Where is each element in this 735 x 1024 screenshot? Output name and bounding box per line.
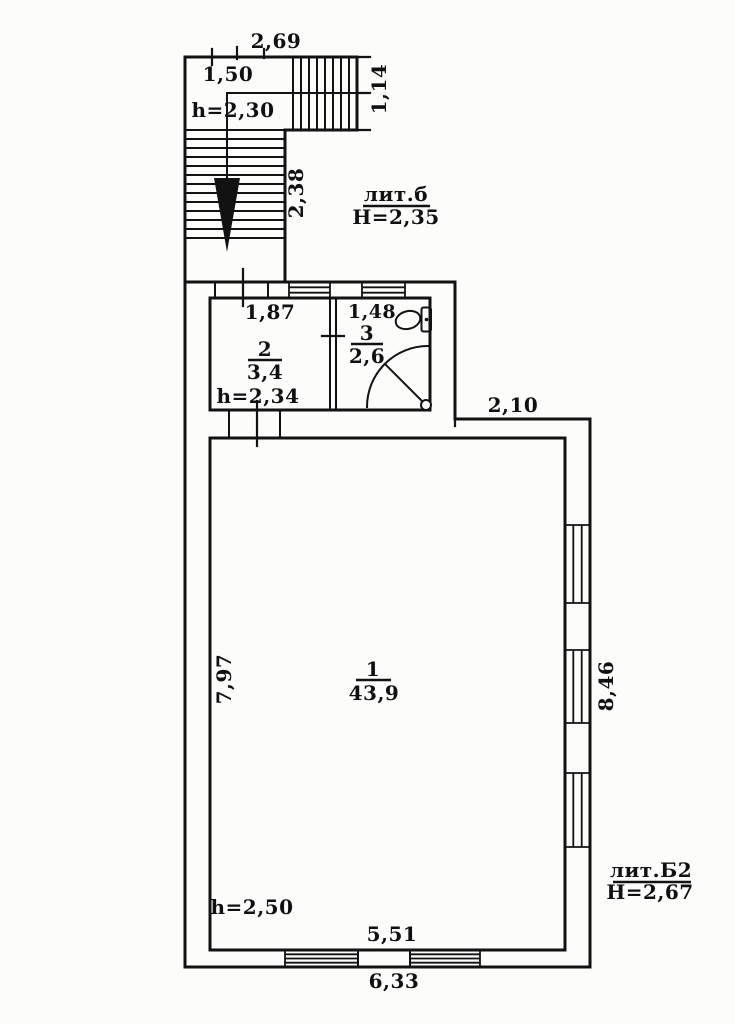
annex-height: Н=2,35: [352, 205, 439, 229]
room3-area: 2,6: [349, 344, 385, 368]
room3-number: 3: [360, 321, 374, 345]
room1-number: 1: [366, 657, 380, 681]
dim-stair-flight-length: 2,38: [284, 168, 308, 219]
stair-annex-outline: [185, 57, 357, 282]
window-bottom-2: [410, 950, 480, 967]
dim-stair-total-width: 2,69: [251, 29, 302, 53]
dim-room3-width: 1,48: [348, 301, 396, 323]
room1-labels: 2,10 1 43,9 7,97 8,46 h=2,50 5,51 6,33: [210, 393, 618, 993]
room2-area: 3,4: [247, 360, 283, 384]
stair-height-label: h=2,30: [191, 98, 274, 122]
building-b2-label: лит.Б2 Н=2,67: [606, 858, 693, 904]
building-height: Н=2,67: [606, 880, 693, 904]
annex-b-label: лит.б Н=2,35: [352, 182, 439, 229]
dim-room1-left-depth: 7,97: [212, 654, 236, 705]
room1-height-label: h=2,50: [210, 895, 293, 919]
floor-plan-drawing: 2,69 1,50 h=2,30 1,14 2,38 лит.б Н=2,35 …: [0, 0, 735, 1024]
dim-room2-width: 1,87: [245, 300, 296, 324]
window-top-room2: [289, 282, 330, 298]
room2-number: 2: [258, 337, 272, 361]
dim-room1-right-depth: 8,46: [594, 661, 618, 712]
room2-height-label: h=2,34: [216, 384, 299, 408]
room3-labels: 1,48 3 2,6: [348, 301, 396, 368]
window-right-2: [565, 650, 590, 723]
window-right-3: [565, 773, 590, 847]
floor-plan-sheet: 2,69 1,50 h=2,30 1,14 2,38 лит.б Н=2,35 …: [0, 0, 735, 1024]
dim-stair-landing-width: 1,50: [203, 62, 254, 86]
dim-room1-inner-width: 5,51: [367, 922, 418, 946]
window-top-room3: [362, 282, 405, 298]
annex-liter: лит.б: [364, 182, 428, 206]
toilet-icon: [394, 308, 431, 332]
window-bottom-1: [285, 950, 358, 967]
dim-stair-upper-flight-width: 1,14: [367, 64, 391, 115]
room2-labels: 1,87 2 3,4 h=2,34: [216, 300, 299, 408]
dim-room1-top-width: 2,10: [488, 393, 539, 417]
window-right-1: [565, 525, 590, 603]
building-liter: лит.Б2: [610, 858, 692, 882]
dim-room1-outer-width: 6,33: [369, 969, 420, 993]
room1-area: 43,9: [349, 681, 400, 705]
